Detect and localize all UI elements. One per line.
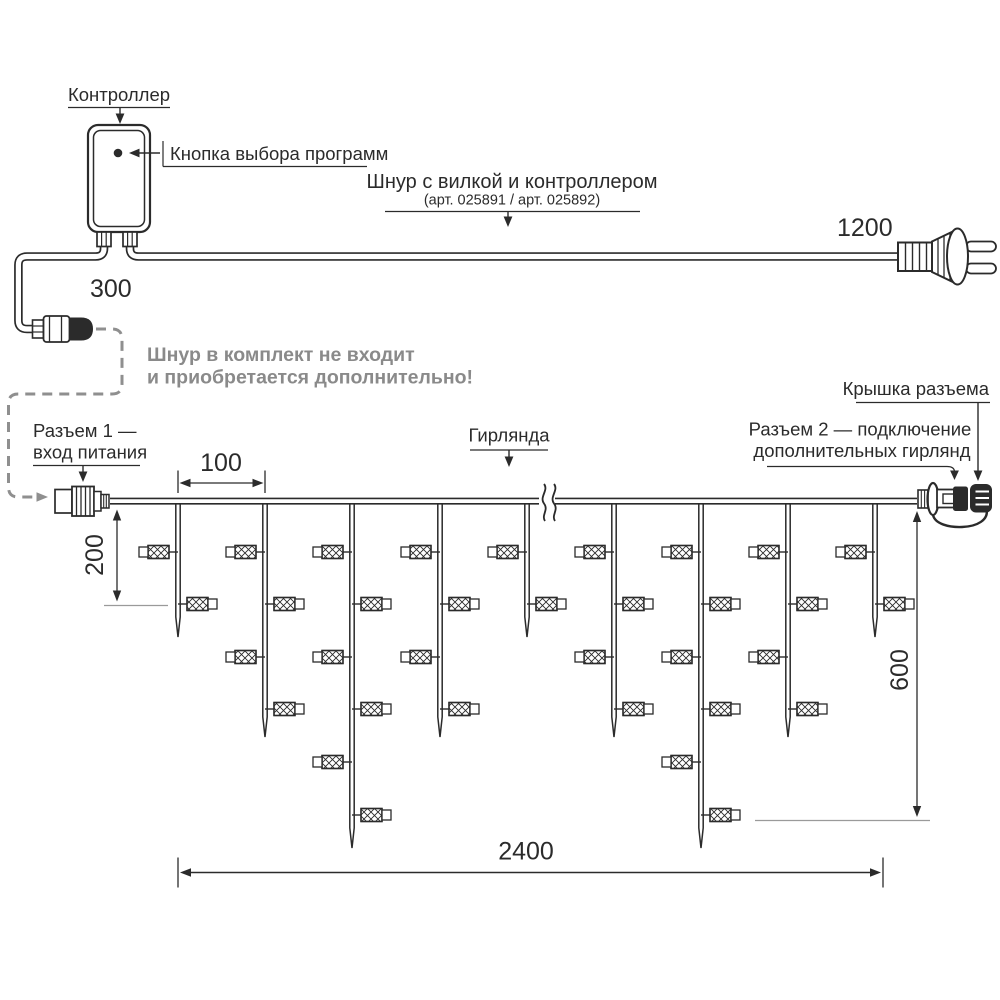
lamp-hatch: [584, 651, 605, 664]
lamp-hatch: [845, 546, 866, 559]
controller: [88, 125, 150, 247]
lamp-cap: [644, 704, 653, 714]
garland-arrowhead: [505, 457, 514, 468]
lamp-hatch: [449, 598, 470, 611]
lamp-hatch: [710, 598, 731, 611]
lamp-hatch: [584, 546, 605, 559]
cord-connector-ladder: [33, 320, 44, 338]
cord-art-label: (арт. 025891 / арт. 025892): [424, 193, 600, 209]
lamp-hatch: [710, 809, 731, 822]
connector-cap: [971, 485, 991, 512]
lamp-hatch: [671, 651, 692, 664]
lamp-cap: [313, 757, 322, 767]
dim-arrowhead: [870, 868, 881, 876]
connector1-arrowhead: [79, 472, 88, 483]
lamp-hatch: [671, 546, 692, 559]
lamp-hatch: [884, 598, 905, 611]
power-cord-right: [130, 246, 899, 257]
dashed-extension-path: [9, 329, 123, 497]
cord-title-callout: Шнур с вилкой и контроллером (арт. 02589…: [367, 171, 658, 227]
cord-title-label: Шнур с вилкой и контроллером: [367, 171, 658, 193]
garland-drop: [699, 503, 703, 848]
lamp-cap: [731, 599, 740, 609]
lamp-cap: [818, 704, 827, 714]
lamp-hatch: [536, 598, 557, 611]
power-cord-right-core: [130, 246, 899, 257]
cord-connector-cap: [70, 318, 94, 341]
dim-1200: 1200: [837, 214, 893, 242]
garland-drop: [612, 503, 616, 737]
lamp-hatch: [148, 546, 169, 559]
lamp-hatch: [274, 598, 295, 611]
connector-cap-label: Крышка разъема: [843, 378, 990, 399]
lamp-cap: [575, 652, 584, 662]
lamp-hatch: [797, 598, 818, 611]
connector1: [55, 487, 109, 517]
break-squiggle: [553, 484, 556, 521]
connector1-ribbed-nut: [72, 487, 94, 517]
lamp-cap: [749, 547, 758, 557]
lamp-cap: [470, 599, 479, 609]
lamp-cap: [295, 704, 304, 714]
lamp-hatch: [235, 546, 256, 559]
connector2: [918, 483, 991, 527]
lamp-hatch: [797, 703, 818, 716]
power-plug: [898, 229, 996, 285]
lamp-cap: [662, 547, 671, 557]
lamp-cap: [662, 652, 671, 662]
connector2-plug: [953, 487, 968, 512]
garland-diagram: Контроллер Кнопка выбора программ: [0, 0, 1000, 1000]
lamp-hatch: [671, 756, 692, 769]
connector1-callout: Разъем 1 — вход питания: [33, 420, 147, 482]
garland-diagram-page: Контроллер Кнопка выбора программ: [0, 0, 1000, 1000]
dashed-path-arrowhead: [37, 492, 49, 502]
connector2-label-line1: Разъем 2 — подключение: [749, 419, 972, 440]
program-button-callout: Кнопка выбора программ: [129, 141, 388, 167]
cord-end-connector: [33, 316, 94, 342]
connector2-callout: Разъем 2 — подключение дополнительных ги…: [749, 419, 972, 481]
lamp-hatch: [187, 598, 208, 611]
dimension-100: 100: [178, 449, 265, 493]
garland-drop: [438, 503, 442, 737]
lamp-cap: [731, 704, 740, 714]
lamp-cap: [382, 704, 391, 714]
lamp-cap: [226, 652, 235, 662]
garland-drop: [176, 503, 180, 637]
dim-arrowhead: [113, 510, 121, 521]
lamp-hatch: [410, 546, 431, 559]
lamp-cap: [382, 810, 391, 820]
dim-200: 200: [81, 534, 109, 576]
garland-drop: [873, 503, 877, 637]
connector2-label-line2: дополнительных гирлянд: [753, 440, 970, 461]
connector1-label-line1: Разъем 1 —: [33, 420, 137, 441]
lamp-hatch: [322, 756, 343, 769]
lamp-cap: [295, 599, 304, 609]
connector1-label-line2: вход питания: [33, 442, 147, 463]
plug-pin-bottom: [966, 264, 996, 274]
cord-title-arrowhead: [504, 217, 513, 228]
lamp-cap: [557, 599, 566, 609]
dim-arrowhead: [253, 479, 264, 487]
dim-100: 100: [200, 449, 242, 477]
wire-break-symbol: [539, 484, 556, 521]
controller-arrowhead: [116, 114, 125, 125]
note-line2: и приобретается дополнительно!: [147, 367, 473, 389]
lamp-cap: [313, 652, 322, 662]
note-line1: Шнур в комплект не входит: [147, 344, 415, 366]
lamp-hatch: [274, 703, 295, 716]
lamp-cap: [313, 547, 322, 557]
dim-arrowhead: [913, 511, 921, 522]
lamp-cap: [470, 704, 479, 714]
garland-callout: Гирлянда: [468, 425, 550, 468]
lamp-cap: [905, 599, 914, 609]
lamp-hatch: [758, 546, 779, 559]
dim-300: 300: [90, 275, 132, 303]
dim-arrowhead: [113, 591, 121, 602]
lamp-hatch: [410, 651, 431, 664]
lamp-hatch: [361, 598, 382, 611]
lamp-cap: [749, 652, 758, 662]
garland-drop: [350, 503, 354, 848]
garland-drop: [263, 503, 267, 737]
connector1-collet: [101, 495, 109, 509]
lamp-hatch: [322, 651, 343, 664]
garland-drop: [786, 503, 790, 737]
connector2-rule: [767, 467, 955, 473]
lamp-hatch: [623, 703, 644, 716]
dim-arrowhead: [180, 479, 191, 487]
lamp-cap: [226, 547, 235, 557]
controller-outlet-left: [97, 232, 111, 247]
program-button-label: Кнопка выбора программ: [170, 143, 388, 164]
connector1-block: [55, 490, 72, 514]
dim-arrowhead: [913, 806, 921, 817]
dim-600: 600: [886, 649, 914, 691]
lamp-cap: [836, 547, 845, 557]
cap-arrowhead: [974, 471, 983, 482]
garland-label: Гирлянда: [468, 425, 550, 446]
lamp-hatch: [235, 651, 256, 664]
plug-pin-top: [966, 242, 996, 252]
program-button-dot: [114, 149, 123, 158]
lamp-cap: [382, 599, 391, 609]
controller-label: Контроллер: [68, 84, 170, 105]
plug-face: [947, 229, 968, 285]
controller-body-inner: [94, 131, 145, 227]
lamp-hatch: [361, 703, 382, 716]
lamp-cap: [662, 757, 671, 767]
dim-2400: 2400: [498, 838, 554, 866]
garland-drops: [139, 503, 914, 848]
lamp-cap: [401, 652, 410, 662]
dim-arrowhead: [180, 868, 191, 876]
lamp-hatch: [449, 703, 470, 716]
lamp-cap: [208, 599, 217, 609]
lamp-cap: [401, 547, 410, 557]
lamp-cap: [139, 547, 148, 557]
lamp-hatch: [361, 809, 382, 822]
lamp-hatch: [710, 703, 731, 716]
lamp-cap: [575, 547, 584, 557]
lamp-hatch: [623, 598, 644, 611]
lamp-hatch: [322, 546, 343, 559]
dimension-2400: 2400: [178, 838, 883, 888]
lamp-hatch: [497, 546, 518, 559]
lamp-cap: [644, 599, 653, 609]
garland-drop: [525, 503, 529, 637]
lamp-cap: [731, 810, 740, 820]
lamp-cap: [818, 599, 827, 609]
cord-connector-body: [44, 316, 70, 342]
lamp-hatch: [758, 651, 779, 664]
connector1-collar: [94, 492, 101, 512]
controller-outlet-right: [123, 232, 137, 247]
connector2-arrowhead: [950, 471, 959, 481]
lamp-cap: [488, 547, 497, 557]
